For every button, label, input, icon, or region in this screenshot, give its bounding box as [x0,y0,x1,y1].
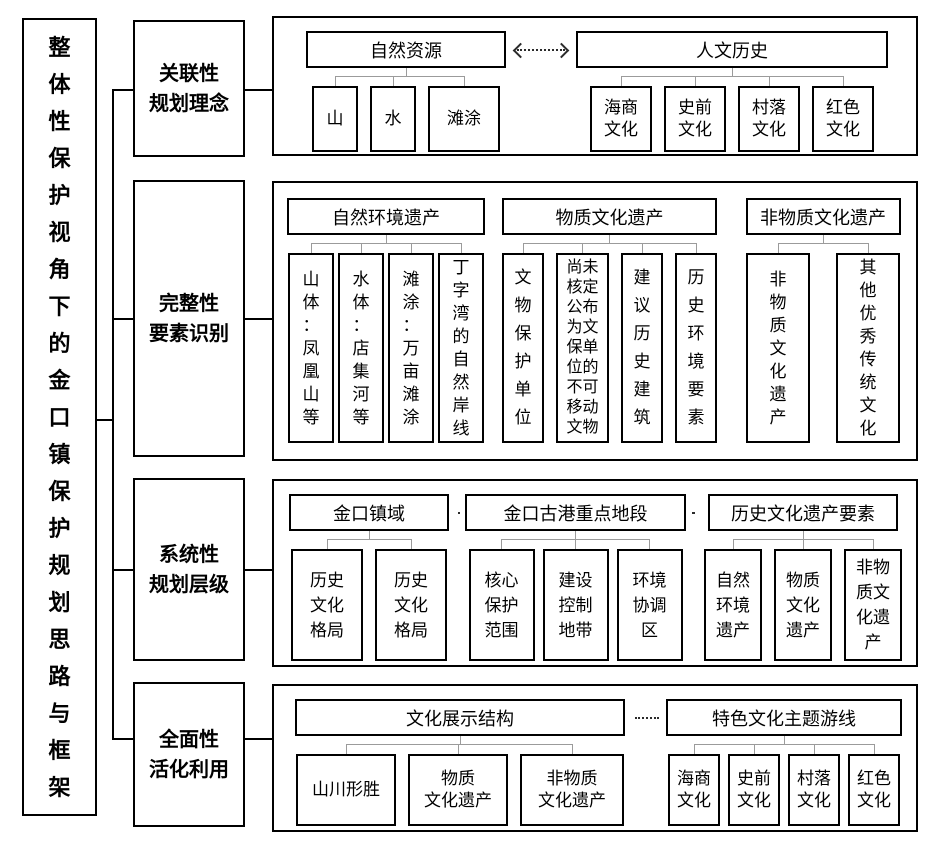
group-material-cultural-heritage: 物质文化遗产 文 物 保 护 单 位 尚未 核定 公布 为文 保单 位的 不可 … [496,198,723,443]
child-box: 村落 文化 [738,86,800,152]
header-material-cultural-heritage: 物质文化遗产 [502,198,717,235]
tree-connector [369,531,370,539]
label-panel-line-3 [245,569,272,571]
tree-connector [458,744,459,754]
child-box: 历史 文化 格局 [291,549,363,661]
tree-connector [621,76,622,86]
tree-connector [411,539,412,549]
children-row: 自然 环境 遗产 物质 文化 遗产 非物 质文 化遗 产 [698,539,908,661]
group-intangible-cultural-heritage: 非物质文化遗产 非 物 质 文 化 遗 产 其 他 优 秀 传 统 文 化 [733,198,913,443]
tree-connector [814,744,815,754]
header-humanistic-history: 人文历史 [576,31,888,68]
header-jinkou-town-area: 金口镇域 [289,494,449,531]
spine-stub-3 [112,569,133,571]
tree-connector [386,235,387,243]
label-panel-line-4 [245,738,272,740]
tree-connector [784,736,785,744]
child-box: 物质 文化 遗产 [774,549,832,661]
header-natural-environment-heritage: 自然环境遗产 [287,198,485,235]
tree-connector [696,243,697,253]
child-box: 海商 文化 [668,754,720,826]
spine-stub-2 [112,318,133,320]
group-jinkou-town-area: 金口镇域 历史 文化 格局 历史 文化 格局 [285,494,453,661]
tree-connector [823,235,824,243]
section-label-relevance: 关联性 规划理念 [133,20,245,157]
dotted-connector [635,717,659,719]
child-box: 红色 文化 [812,86,874,152]
child-box: 环境 协调 区 [617,549,683,661]
header-natural-resources: 自然资源 [306,31,506,68]
diagram-canvas: 整 体 性 保 护 视 角 下 的 金 口 镇 保 护 规 划 思 路 与 框 … [0,0,951,848]
header-cultural-display-structure: 文化展示结构 [295,699,625,736]
tree-connector [406,68,407,76]
tree-connector [769,76,770,86]
tree-connector [694,744,695,754]
tree-connector [874,744,875,754]
tree-connector [575,539,576,549]
child-box: 自然 环境 遗产 [704,549,762,661]
tree-connector [461,243,462,253]
panel-comprehensive: 文化展示结构 山川形胜 物质 文化遗产 非物质 文化遗产 特色文化主题游线 海商… [272,684,918,832]
group-natural-resources: 自然资源 山 水 滩涂 [306,31,506,152]
tree-connector [361,243,362,253]
tree-connector [868,243,869,253]
tree-connector [523,243,524,253]
child-box: 滩涂 [428,86,500,152]
panel-systematic: 金口镇域 历史 文化 格局 历史 文化 格局 金口古港重点地段 核心 保护 范围… [272,479,918,667]
child-box: 山川形胜 [296,754,396,826]
children-row: 海商 文化 史前 文化 村落 文化 红色 文化 [584,76,880,152]
tree-connector [572,744,573,754]
child-box: 建设 控制 地带 [543,549,609,661]
child-box: 历 史 环 境 要 素 [675,253,717,443]
children-row: 文 物 保 护 单 位 尚未 核定 公布 为文 保单 位的 不可 移动 文物 建… [496,243,723,443]
root-title: 整 体 性 保 护 视 角 下 的 金 口 镇 保 护 规 划 思 路 与 框 … [48,29,70,806]
section-label-completeness: 完整性 要素识别 [133,180,245,457]
tree-connector [393,76,394,86]
header-intangible-cultural-heritage: 非物质文化遗产 [746,198,901,235]
spine-stub-4 [112,738,133,740]
header-characteristic-cultural-theme-routes: 特色文化主题游线 [666,699,902,736]
child-box: 村落 文化 [788,754,840,826]
tree-connector [335,76,336,86]
header-historical-cultural-heritage-elements: 历史文化遗产要素 [708,494,898,531]
tree-connector [778,243,779,253]
tree-connector [754,744,755,754]
label-panel-line-1 [245,89,272,91]
group-historical-cultural-heritage-elements: 历史文化遗产要素 自然 环境 遗产 物质 文化 遗产 非物 质文 化遗 产 [698,494,908,661]
section-label-systematic: 系统性 规划层级 [133,478,245,661]
group-natural-environment-heritage: 自然环境遗产 山 体 ： 凤 凰 山 等 水 体 ： 店 集 河 等 滩 涂 ：… [286,198,486,443]
root-title-box: 整 体 性 保 护 视 角 下 的 金 口 镇 保 护 规 划 思 路 与 框 … [22,18,97,816]
tree-connector [575,531,576,539]
children-row: 山 体 ： 凤 凰 山 等 水 体 ： 店 集 河 等 滩 涂 ： 万 亩 滩 … [286,243,486,443]
tree-connector [501,539,502,549]
child-box: 山 体 ： 凤 凰 山 等 [288,253,334,443]
child-box: 核心 保护 范围 [469,549,535,661]
child-box: 山 [312,86,358,152]
tree-connector [582,243,583,253]
tree-connector [311,243,312,253]
child-box: 丁 字 湾 的 自 然 岸 线 [438,253,484,443]
children-row: 非 物 质 文 化 遗 产 其 他 优 秀 传 统 文 化 [733,243,913,443]
tree-connector [346,744,347,754]
tree-connector [327,539,328,549]
child-box: 非 物 质 文 化 遗 产 [746,253,810,443]
tree-connector [464,76,465,86]
panel-relevance: 自然资源 山 水 滩涂 人文历史 海商 文化 史前 [272,16,918,156]
dotted-connector [458,512,460,514]
tree-connector [642,243,643,253]
child-box: 非物 质文 化遗 产 [844,549,902,661]
child-box: 建 议 历 史 建 筑 [621,253,663,443]
tree-connector [649,539,650,549]
child-box: 文 物 保 护 单 位 [502,253,544,443]
label-panel-line-2 [245,318,272,320]
group-humanistic-history: 人文历史 海商 文化 史前 文化 村落 文化 红色 文化 [576,31,888,152]
children-row: 山 水 滩涂 [306,76,506,152]
child-box: 物质 文化遗产 [408,754,508,826]
group-cultural-display-structure: 文化展示结构 山川形胜 物质 文化遗产 非物质 文化遗产 [290,699,630,826]
header-jinkou-port-key-area: 金口古港重点地段 [465,494,686,531]
root-feed-line [97,419,112,421]
tree-connector [732,68,733,76]
children-row: 海商 文化 史前 文化 村落 文化 红色 文化 [664,744,904,826]
child-box: 水 [370,86,416,152]
spine-line [112,89,114,740]
spine-stub-1 [112,89,133,91]
tree-connector [803,531,804,539]
panel-completeness: 自然环境遗产 山 体 ： 凤 凰 山 等 水 体 ： 店 集 河 等 滩 涂 ：… [272,181,918,461]
child-box: 尚未 核定 公布 为文 保单 位的 不可 移动 文物 [556,253,609,443]
children-row: 历史 文化 格局 历史 文化 格局 [285,539,453,661]
group-jinkou-port-key-area: 金口古港重点地段 核心 保护 范围 建设 控制 地带 环境 协调 区 [465,494,687,661]
dotted-connector [692,512,694,514]
tree-connector [803,539,804,549]
section-label-comprehensive: 全面性 活化利用 [133,682,245,827]
tree-connector [411,243,412,253]
tree-connector [873,539,874,549]
tree-connector [733,539,734,549]
child-box: 水 体 ： 店 集 河 等 [338,253,384,443]
child-box: 非物质 文化遗产 [520,754,624,826]
children-row: 核心 保护 范围 建设 控制 地带 环境 协调 区 [465,539,687,661]
group-characteristic-cultural-theme-routes: 特色文化主题游线 海商 文化 史前 文化 村落 文化 红色 文化 [664,699,904,826]
child-box: 其 他 优 秀 传 统 文 化 [836,253,900,443]
child-box: 历史 文化 格局 [375,549,447,661]
child-box: 红色 文化 [848,754,900,826]
tree-connector [609,235,610,243]
double-arrow-connector [517,49,565,51]
tree-connector [695,76,696,86]
child-box: 滩 涂 ： 万 亩 滩 涂 [388,253,434,443]
child-box: 史前 文化 [728,754,780,826]
tree-connector [460,736,461,744]
tree-connector [843,76,844,86]
children-row: 山川形胜 物质 文化遗产 非物质 文化遗产 [290,744,630,826]
child-box: 海商 文化 [590,86,652,152]
child-box: 史前 文化 [664,86,726,152]
